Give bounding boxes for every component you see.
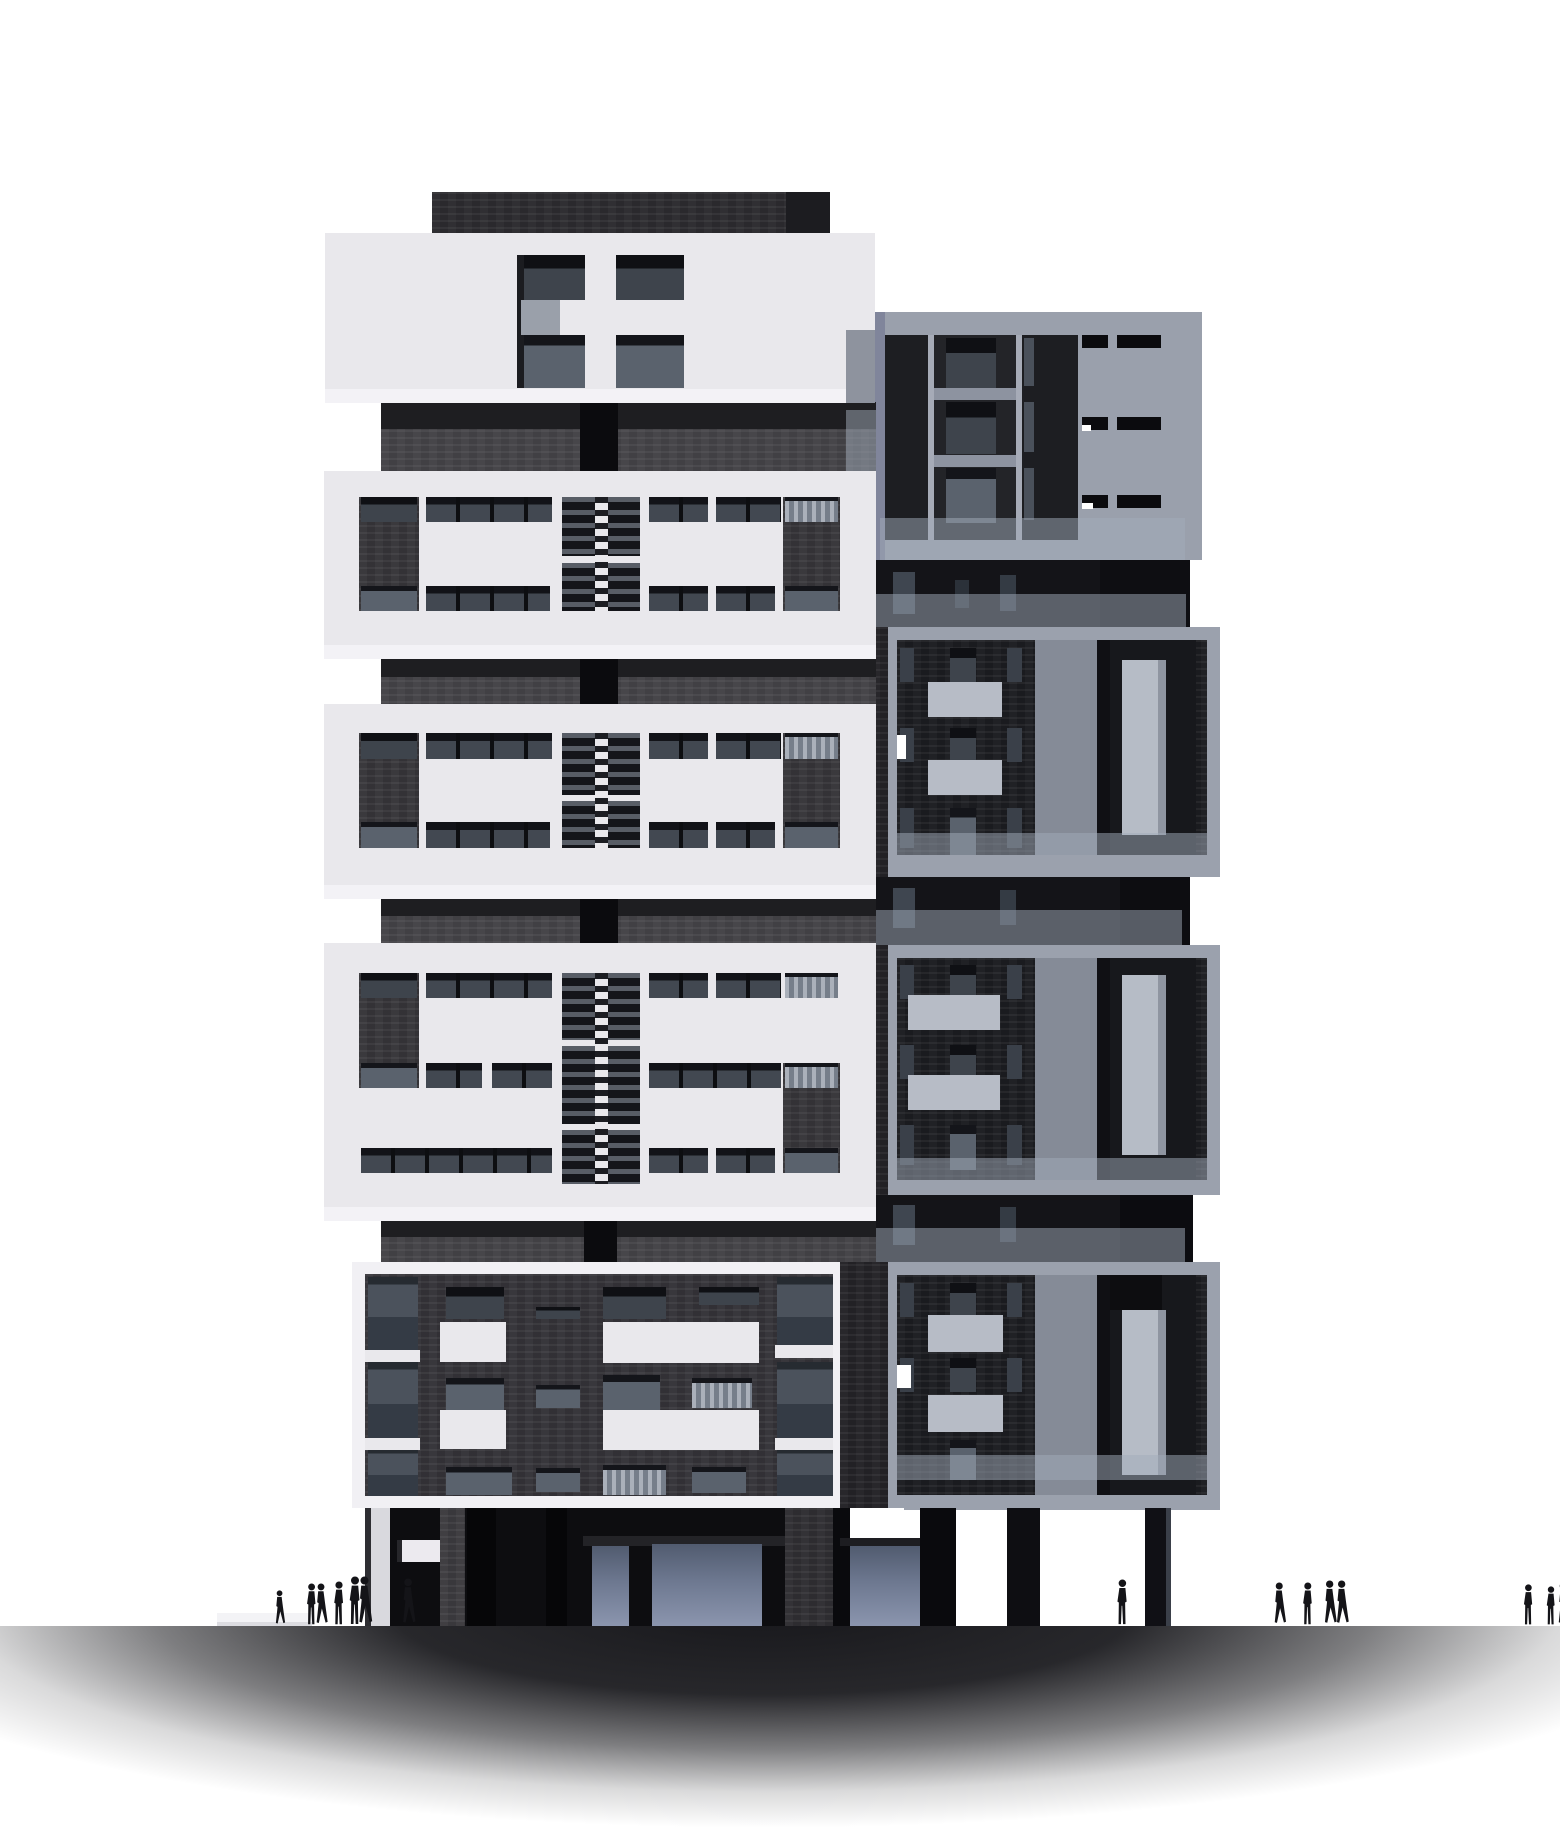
tower-balustrade bbox=[880, 518, 1185, 560]
bm-bay4-win-3b bbox=[692, 1467, 746, 1493]
module-b-win-r1a bbox=[900, 648, 914, 682]
tower-bay3-sliver-2 bbox=[1024, 402, 1034, 452]
bm-right-slab-1 bbox=[775, 1345, 833, 1358]
box2-strip-t1 bbox=[426, 497, 552, 522]
module-b-slab-1 bbox=[928, 682, 1002, 717]
bm-bay4-win-1 bbox=[603, 1287, 666, 1319]
module-c-win-r2c bbox=[1007, 1045, 1022, 1079]
module-b-panel-shade bbox=[1158, 660, 1166, 835]
module-b-balustrade bbox=[897, 833, 1207, 855]
module-d-light-panel bbox=[1122, 1310, 1158, 1475]
module-d-recess-header bbox=[1110, 1275, 1162, 1310]
box2-strip-b1 bbox=[426, 586, 550, 611]
bm-bay4-win-2b bbox=[692, 1378, 752, 1408]
bm-bay4-panel-2 bbox=[603, 1410, 759, 1450]
box4-win-r1d bbox=[785, 973, 838, 998]
person-stand-5 bbox=[1299, 1582, 1317, 1626]
terrace-2-balustrade bbox=[846, 910, 1182, 945]
box3-strip-t3 bbox=[716, 733, 781, 759]
module-d-win-r1b bbox=[950, 1283, 976, 1317]
box4-left-win-bot bbox=[361, 1063, 417, 1088]
module-c-win-r1a bbox=[900, 965, 914, 999]
pilotis-black-col bbox=[920, 1508, 956, 1626]
module-b-slab-2 bbox=[928, 760, 1002, 795]
box3-strip-t2 bbox=[649, 733, 708, 759]
person-walk-3 bbox=[398, 1578, 417, 1626]
pilotis-stub-edge bbox=[397, 1540, 402, 1562]
tower-slot-a1 bbox=[1082, 335, 1108, 348]
penthouse-window-ul bbox=[524, 255, 585, 300]
band-b-shadow bbox=[381, 659, 876, 677]
box3-left-win-bot bbox=[361, 822, 417, 848]
pilotis-dark-col-1 bbox=[467, 1508, 496, 1626]
person-walk-7 bbox=[1554, 1582, 1560, 1626]
pilotis-brick-pier bbox=[440, 1508, 465, 1626]
module-c-win-r1c bbox=[1007, 965, 1022, 999]
band-a-shadow bbox=[381, 402, 876, 429]
module-c-balustrade bbox=[897, 1158, 1207, 1180]
bm-bay4-panel-1 bbox=[603, 1322, 759, 1363]
box3-strip-b1 bbox=[426, 822, 550, 848]
module-b-win-r1b bbox=[950, 648, 976, 682]
tower-bay2-slab-1 bbox=[934, 388, 1016, 400]
bm-bay2-win-2 bbox=[446, 1378, 504, 1410]
terrace-1-balustrade bbox=[846, 594, 1186, 627]
box2-strip-b2 bbox=[649, 586, 708, 611]
box2-strip-t3 bbox=[716, 497, 781, 522]
band-d-core bbox=[584, 1221, 617, 1262]
pilotis-pier-2 bbox=[1007, 1508, 1040, 1626]
ground-shadow bbox=[0, 1626, 1560, 1828]
person-walk-2 bbox=[354, 1576, 374, 1626]
penthouse-window-lr bbox=[616, 335, 684, 388]
tower-bay2-window-1 bbox=[946, 338, 996, 388]
bm-left-win-3 bbox=[368, 1449, 418, 1496]
bm-left-slab-2 bbox=[365, 1438, 420, 1450]
roof-parapet-dark-end bbox=[786, 192, 830, 235]
box4-left-win-top bbox=[361, 973, 417, 998]
box4-right-win-top bbox=[785, 1063, 838, 1088]
box3-core-strip bbox=[595, 733, 608, 848]
bm-left-slab-1 bbox=[365, 1350, 420, 1362]
module-b-white-slit bbox=[897, 735, 906, 759]
pilotis-black-strip bbox=[833, 1508, 850, 1626]
box4-strip-r2c bbox=[649, 1063, 781, 1088]
penthouse-window-ll bbox=[524, 335, 585, 388]
bm-bay4-small-win bbox=[699, 1287, 759, 1305]
pilotis-stub-wall bbox=[397, 1540, 445, 1562]
bm-bay4-win-3a bbox=[603, 1465, 666, 1495]
box3-left-win-top bbox=[361, 733, 417, 759]
module-d-win-r1a bbox=[900, 1283, 914, 1317]
module-c-win-r2b bbox=[950, 1045, 976, 1079]
bm-right-win-2 bbox=[777, 1362, 833, 1438]
box3-base-band bbox=[324, 885, 876, 899]
box2-right-win-top bbox=[785, 497, 838, 522]
module-c-slab-2 bbox=[908, 1075, 1000, 1110]
bm-bay2-win-1 bbox=[446, 1287, 504, 1319]
bm-left-win-2 bbox=[368, 1362, 418, 1438]
pilotis-storefront-small bbox=[592, 1546, 629, 1626]
pilotis-lintel-2 bbox=[840, 1538, 932, 1546]
penthouse-base-band bbox=[325, 389, 875, 403]
module-d-slab-1 bbox=[928, 1315, 1003, 1352]
box2-left-win-top bbox=[361, 497, 417, 522]
box4-strip-r3c bbox=[716, 1148, 775, 1173]
person-child-running bbox=[272, 1590, 286, 1626]
tower-bay-1 bbox=[885, 335, 928, 540]
box4-strip-r3a bbox=[361, 1148, 552, 1173]
penthouse-window-ur bbox=[616, 255, 684, 300]
module-d-slab-2 bbox=[928, 1395, 1003, 1432]
box2-right-win-bot bbox=[785, 586, 838, 611]
box4-strip-r1b bbox=[649, 973, 708, 998]
box4-strip-r1c bbox=[716, 973, 781, 998]
pilotis-storefront-big bbox=[652, 1544, 762, 1626]
tower-slot-b2 bbox=[1117, 417, 1161, 430]
box2-left-win-bot bbox=[361, 586, 417, 611]
band-b-core bbox=[580, 659, 618, 704]
person-stand-4 bbox=[1113, 1579, 1132, 1626]
box2-core-strip bbox=[595, 497, 608, 611]
tower-bay3-sliver-3 bbox=[1024, 468, 1034, 520]
module-c-win-r2a bbox=[900, 1045, 914, 1079]
tower-slot-chip-2 bbox=[1082, 425, 1091, 431]
tower-bay3-sliver-1 bbox=[1024, 338, 1034, 386]
tower-slot-b3 bbox=[1117, 495, 1161, 508]
pilotis-brick-col bbox=[785, 1508, 833, 1626]
box3-right-win-bot bbox=[785, 822, 838, 848]
band-d-shadow bbox=[381, 1221, 876, 1237]
pilotis-storefront-core bbox=[850, 1546, 920, 1626]
module-c-gray-wall bbox=[1035, 958, 1097, 1180]
module-b-light-panel bbox=[1122, 660, 1158, 835]
bm-center-win-3 bbox=[536, 1468, 580, 1492]
box2-base-band bbox=[324, 645, 876, 659]
module-d-win-r2c bbox=[1007, 1358, 1022, 1392]
bm-right-slab-2 bbox=[775, 1438, 833, 1450]
module-b-win-r1c bbox=[1007, 648, 1022, 682]
module-c-slab-1 bbox=[908, 995, 1000, 1030]
box4-right-win-bot bbox=[785, 1148, 838, 1173]
box3-strip-t1 bbox=[426, 733, 552, 759]
box2-strip-t2 bbox=[649, 497, 708, 522]
module-d-win-r1c bbox=[1007, 1283, 1022, 1317]
box3-strip-b2 bbox=[649, 822, 708, 848]
band-c-shadow bbox=[381, 899, 876, 916]
pilotis-white-opening bbox=[850, 1508, 904, 1538]
bm-right-win-3 bbox=[777, 1449, 833, 1496]
penthouse-box bbox=[325, 233, 875, 403]
bm-bay2-win-3 bbox=[446, 1467, 512, 1495]
module-d-white-slit bbox=[897, 1365, 911, 1388]
module-c-light-panel bbox=[1122, 975, 1158, 1155]
box4-strip-r2b bbox=[492, 1063, 552, 1088]
architectural-elevation-scene bbox=[0, 0, 1560, 1828]
tower-bay2-window-2 bbox=[946, 402, 996, 454]
box4-strip-r2a bbox=[426, 1063, 482, 1088]
module-c-dark-gap bbox=[1097, 958, 1110, 1180]
terrace-3-balustrade bbox=[846, 1228, 1185, 1262]
module-b-win-r2b bbox=[950, 728, 976, 762]
box4-base-band bbox=[324, 1207, 876, 1221]
tower-bay2-slab-2 bbox=[934, 455, 1016, 467]
module-c-panel-shade bbox=[1158, 975, 1166, 1155]
pilotis-pier-3-edge bbox=[1166, 1508, 1171, 1626]
module-b-win-r2c bbox=[1007, 728, 1022, 762]
box3-strip-b3 bbox=[716, 822, 775, 848]
tower-slot-chip-3 bbox=[1082, 503, 1093, 509]
module-c-win-r1b bbox=[950, 965, 976, 999]
tower-slot-b1 bbox=[1117, 335, 1161, 348]
pilotis-dark-col-2 bbox=[546, 1508, 567, 1626]
bm-center-win-2 bbox=[536, 1385, 580, 1408]
bm-bay2-panel-2 bbox=[440, 1410, 506, 1449]
box4-core-strip bbox=[595, 973, 608, 1184]
person-walk-4 bbox=[1270, 1582, 1288, 1626]
module-d-win-r2b bbox=[950, 1358, 976, 1392]
module-d-panel-shade bbox=[1158, 1310, 1166, 1475]
box4-strip-r1a bbox=[426, 973, 552, 998]
module-d-balustrade bbox=[897, 1455, 1207, 1480]
band-a-core bbox=[580, 402, 618, 471]
roof-parapet bbox=[432, 192, 830, 235]
module-b-gray-wall bbox=[1035, 640, 1097, 855]
bottom-module-inner bbox=[365, 1274, 833, 1496]
box4-strip-r3b bbox=[649, 1148, 708, 1173]
person-stand-6 bbox=[1520, 1584, 1537, 1626]
tower-bay2-window-3 bbox=[946, 468, 996, 523]
band-c-core bbox=[580, 899, 618, 943]
bm-bay4-win-2a bbox=[603, 1375, 660, 1410]
box3-right-win-top bbox=[785, 733, 838, 759]
module-b-dark-gap bbox=[1097, 640, 1110, 855]
penthouse-gray-panel bbox=[521, 300, 560, 335]
penthouse-side-panel bbox=[846, 330, 875, 403]
person-walk-6 bbox=[1332, 1580, 1350, 1626]
bm-center-win-1 bbox=[536, 1307, 580, 1319]
bm-right-win-1 bbox=[777, 1277, 833, 1350]
box2-strip-b3 bbox=[716, 586, 775, 611]
bm-bay2-panel-1 bbox=[440, 1322, 506, 1362]
bm-left-win-1 bbox=[368, 1277, 418, 1350]
person-walk-1 bbox=[312, 1583, 329, 1626]
